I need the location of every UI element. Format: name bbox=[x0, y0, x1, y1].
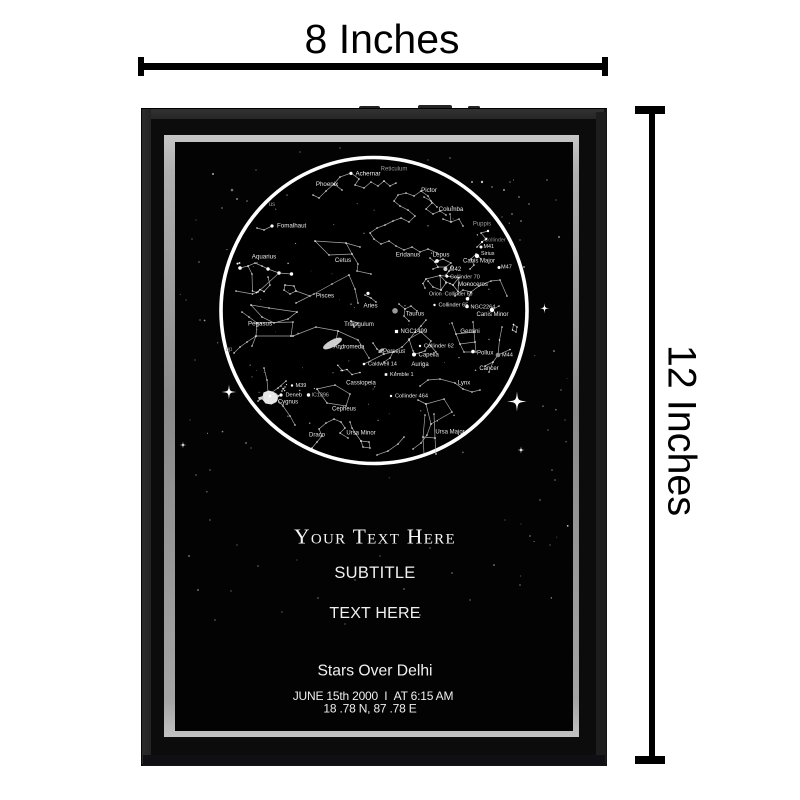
svg-text:M41: M41 bbox=[484, 244, 495, 250]
svg-text:Eridanus: Eridanus bbox=[396, 252, 420, 259]
svg-text:Collinder: Collinder bbox=[484, 238, 505, 244]
svg-text:Kemble 1: Kemble 1 bbox=[390, 372, 414, 378]
svg-text:Pisces: Pisces bbox=[316, 293, 334, 300]
svg-text:Reticulum: Reticulum bbox=[381, 167, 408, 173]
svg-text:Cetus: Cetus bbox=[335, 257, 351, 264]
svg-text:Capella: Capella bbox=[419, 352, 440, 358]
svg-text:Triangulum: Triangulum bbox=[344, 322, 374, 328]
svg-text:TEXT HERE: TEXT HERE bbox=[329, 605, 420, 622]
svg-text:Collinder 62: Collinder 62 bbox=[424, 344, 454, 350]
svg-text:up: up bbox=[226, 347, 233, 353]
svg-text:Collinder 70: Collinder 70 bbox=[450, 275, 480, 281]
svg-text:us: us bbox=[269, 202, 275, 208]
svg-text:Cancer: Cancer bbox=[479, 366, 498, 372]
svg-text:Ursa Major: Ursa Major bbox=[435, 430, 464, 436]
svg-text:Taurus: Taurus bbox=[406, 311, 425, 318]
svg-text:Pollux: Pollux bbox=[477, 351, 493, 357]
svg-text:Draco: Draco bbox=[309, 433, 326, 439]
svg-text:M39: M39 bbox=[296, 383, 307, 389]
svg-text:Sirius: Sirius bbox=[481, 251, 495, 257]
svg-text:Orion ·Collinder 69: Orion ·Collinder 69 bbox=[429, 292, 473, 298]
svg-text:18 .78 N, 87 .78 E: 18 .78 N, 87 .78 E bbox=[323, 701, 416, 715]
svg-text:Gemini: Gemini bbox=[460, 328, 480, 335]
svg-text:Aries: Aries bbox=[363, 303, 377, 310]
svg-text:Achernar: Achernar bbox=[356, 171, 381, 178]
svg-text:NGC2264: NGC2264 bbox=[471, 304, 496, 310]
svg-text:Stars Over Delhi: Stars Over Delhi bbox=[317, 662, 432, 679]
svg-text:Monoceros: Monoceros bbox=[458, 282, 488, 288]
svg-text:Cassiopeia: Cassiopeia bbox=[346, 381, 376, 387]
svg-text:M44: M44 bbox=[502, 353, 513, 359]
svg-text:Deneb: Deneb bbox=[286, 392, 302, 398]
svg-text:Lepus: Lepus bbox=[433, 252, 450, 259]
svg-text:Phoenix: Phoenix bbox=[316, 181, 339, 188]
svg-text:Canis Minor: Canis Minor bbox=[476, 312, 508, 318]
svg-text:IC1396: IC1396 bbox=[312, 392, 329, 398]
svg-text:Canis Major: Canis Major bbox=[463, 259, 495, 265]
svg-text:Pegasus: Pegasus bbox=[248, 321, 272, 328]
svg-text:Cepheus: Cepheus bbox=[332, 407, 356, 413]
svg-text:Lynx: Lynx bbox=[458, 381, 470, 387]
svg-text:Ursa Minor: Ursa Minor bbox=[346, 431, 375, 437]
svg-text:Fomalhaut: Fomalhaut bbox=[277, 223, 307, 230]
svg-text:Collinder 464: Collinder 464 bbox=[395, 394, 428, 400]
svg-text:Puppis: Puppis bbox=[473, 222, 491, 228]
svg-text:Perseus: Perseus bbox=[383, 349, 405, 355]
svg-text:Your Text Here: Your Text Here bbox=[294, 525, 456, 549]
svg-text:NGC1499: NGC1499 bbox=[401, 329, 428, 335]
svg-text:Columba: Columba bbox=[439, 206, 464, 213]
svg-text:Collinder 65: Collinder 65 bbox=[439, 303, 469, 309]
svg-text:SUBTITLE: SUBTITLE bbox=[334, 564, 415, 582]
svg-text:Pictor: Pictor bbox=[421, 187, 437, 194]
svg-text:Aquarius: Aquarius bbox=[252, 254, 276, 261]
svg-text:Cygnus: Cygnus bbox=[278, 400, 298, 406]
svg-text:Auriga: Auriga bbox=[411, 362, 429, 368]
svg-text:M47: M47 bbox=[501, 265, 512, 271]
svg-text:Andromeda: Andromeda bbox=[333, 345, 365, 351]
svg-text:M42: M42 bbox=[450, 267, 462, 273]
svg-text:Caldwell 14: Caldwell 14 bbox=[368, 362, 397, 368]
